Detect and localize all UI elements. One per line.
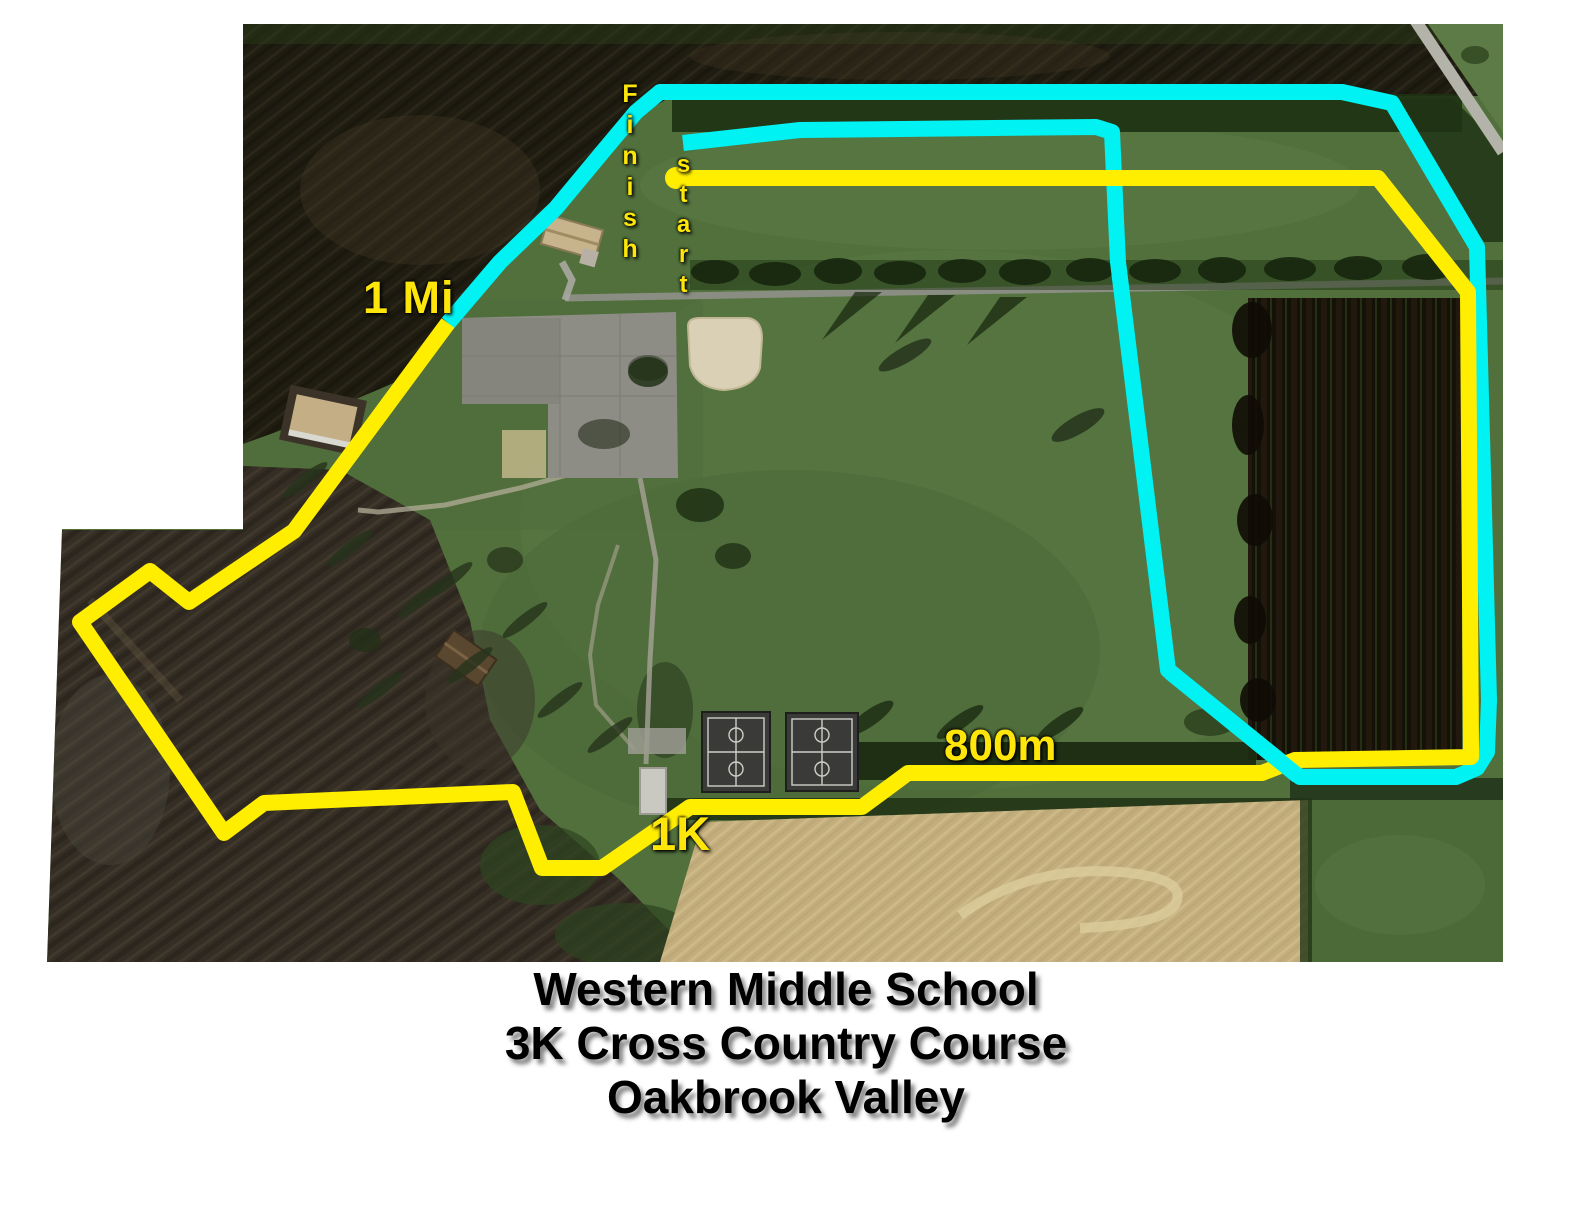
title-line-school: Western Middle School <box>0 962 1572 1016</box>
label-1k: 1K <box>650 806 710 861</box>
orchard <box>1232 298 1462 760</box>
finish-label: Finish <box>617 80 642 266</box>
court <box>786 713 858 791</box>
label-800m: 800m <box>944 721 1057 771</box>
start-label: start <box>671 151 695 301</box>
title-line-course: 3K Cross Country Course <box>0 1016 1572 1070</box>
course-title: Western Middle School 3K Cross Country C… <box>0 962 1572 1124</box>
title-line-location: Oakbrook Valley <box>0 1070 1572 1124</box>
one-mile-label: 1 Mi <box>363 272 455 324</box>
court <box>702 712 770 792</box>
farm-field <box>660 798 1503 962</box>
baseball-diamond <box>688 318 762 390</box>
concrete-pad <box>628 728 686 754</box>
playground <box>502 430 546 478</box>
course-map-page: Finish start 1 Mi 800m 1K Western Middle… <box>0 0 1584 1224</box>
